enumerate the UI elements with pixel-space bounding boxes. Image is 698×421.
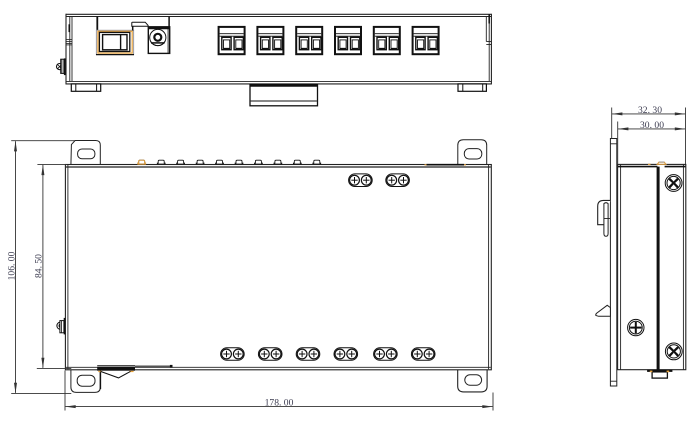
svg-text:30. 00: 30. 00: [640, 120, 664, 131]
svg-text:32. 30: 32. 30: [638, 105, 662, 116]
svg-text:106. 00: 106. 00: [6, 251, 17, 280]
svg-text:84. 50: 84. 50: [33, 254, 44, 278]
svg-text:178. 00: 178. 00: [265, 397, 294, 408]
